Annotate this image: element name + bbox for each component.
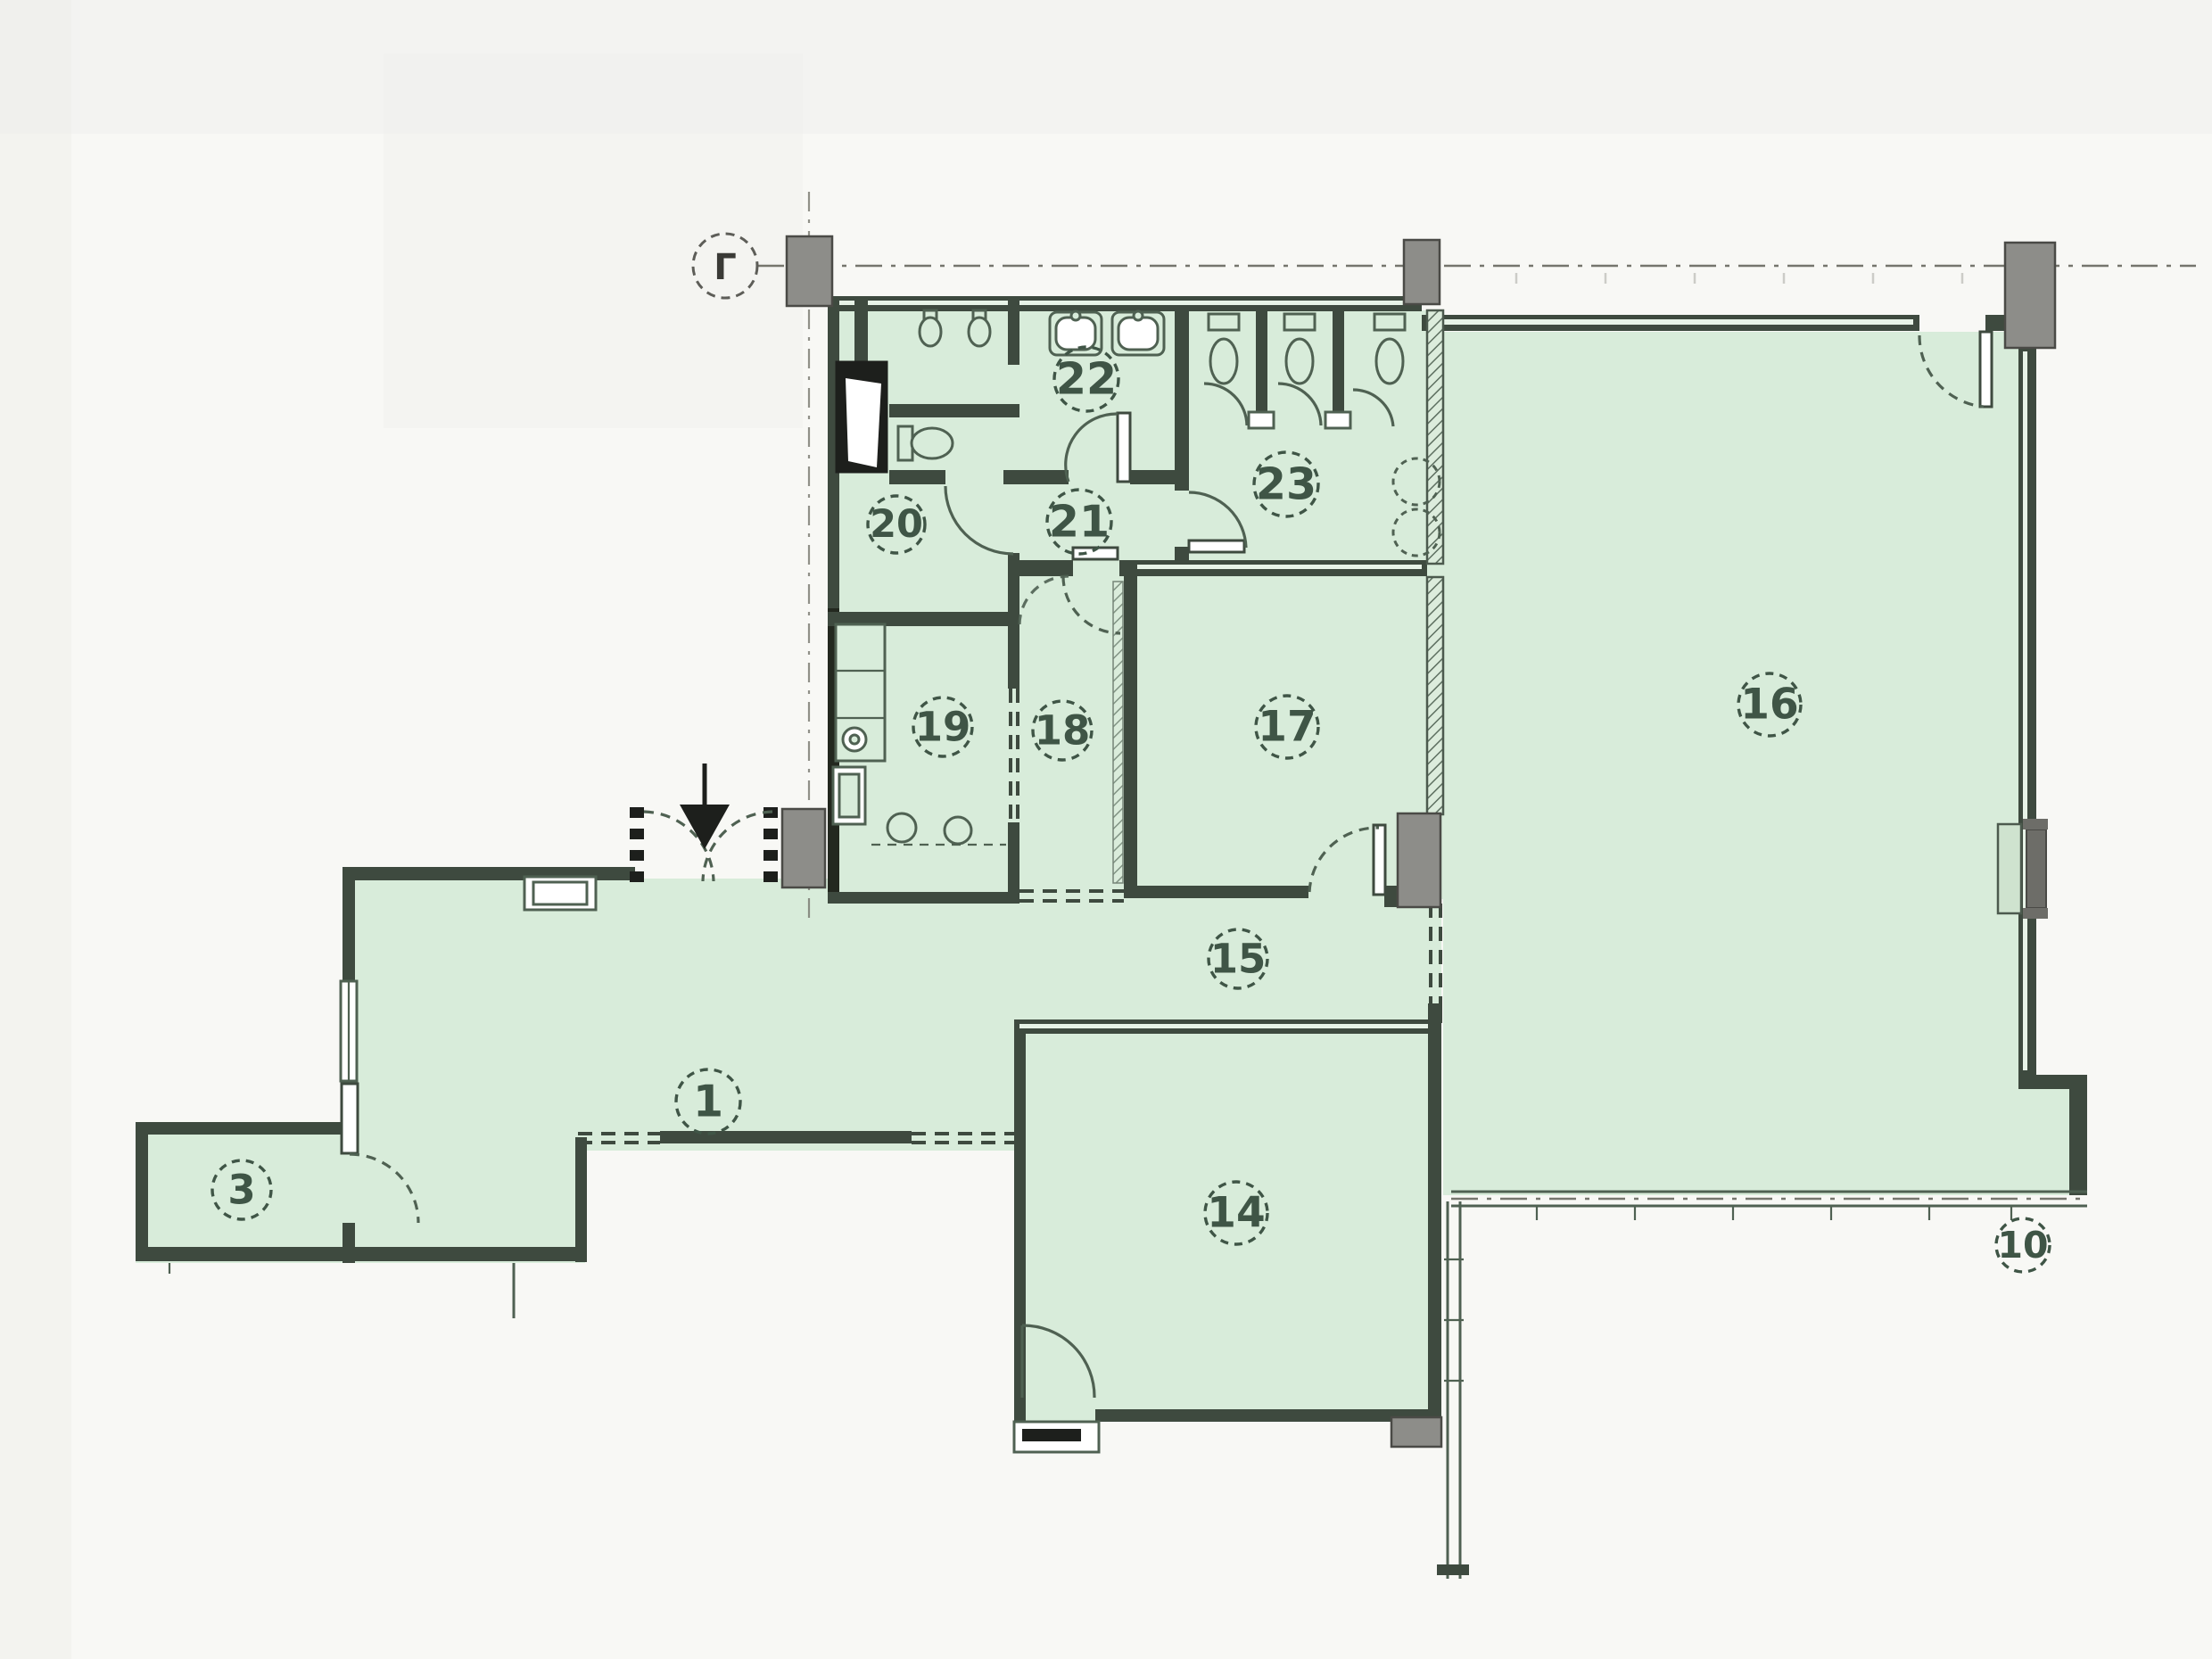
room-number-text: 18 xyxy=(1035,707,1091,755)
room-number-text: 17 xyxy=(1258,703,1316,752)
door-leaf xyxy=(1980,332,1992,407)
room-number-text: 16 xyxy=(1740,681,1798,730)
room-number-text: 3 xyxy=(227,1167,255,1214)
entrance-double-door xyxy=(630,763,778,882)
room-number-text: 1 xyxy=(693,1077,723,1127)
vent-shaft-icon xyxy=(836,361,887,473)
floor-room-16 xyxy=(1443,332,2071,1195)
floor-sanitary-block xyxy=(839,310,1443,899)
room-label-20: 20 xyxy=(868,496,925,553)
floor-plan-drawing: 131014151617181920212223Г xyxy=(0,0,2212,1659)
room-label-14: 14 xyxy=(1205,1182,1267,1244)
room-label-16: 16 xyxy=(1738,673,1801,736)
room-label-10: 10 xyxy=(1996,1218,2050,1272)
column-icon xyxy=(1398,813,1440,907)
room-label-23: 23 xyxy=(1254,452,1318,516)
room-label-22: 22 xyxy=(1054,347,1118,411)
column-icon xyxy=(1391,1417,1441,1447)
room-number-text: 19 xyxy=(915,704,971,751)
column-icon xyxy=(1404,240,1440,304)
room-number-text: 15 xyxy=(1210,936,1267,983)
door-leaf xyxy=(1118,413,1130,482)
door-leaf xyxy=(342,1084,358,1153)
room-label-18: 18 xyxy=(1033,701,1092,760)
room-label-17: 17 xyxy=(1256,696,1318,758)
toilet-icon xyxy=(898,426,953,460)
hatched-wall xyxy=(1113,582,1123,883)
room-label-21: 21 xyxy=(1047,490,1111,554)
column-icon xyxy=(2005,243,2055,348)
room-number-text: 10 xyxy=(1997,1224,2048,1267)
grid-axis-letter: Г xyxy=(714,247,737,288)
column-icon xyxy=(787,236,832,306)
entrance-arrow-icon xyxy=(680,805,730,849)
room-label-15: 15 xyxy=(1209,929,1267,988)
room-number-text: 20 xyxy=(870,502,923,547)
hatched-wall xyxy=(1427,310,1443,564)
room-number-text: 22 xyxy=(1056,354,1117,405)
room-number-text: 23 xyxy=(1256,459,1316,510)
room-number-text: 21 xyxy=(1049,497,1110,548)
entry-step xyxy=(1014,1422,1099,1452)
door-leaf xyxy=(1189,541,1244,552)
room-number-text: 14 xyxy=(1207,1189,1265,1238)
floor-plan-sheet: 131014151617181920212223Г xyxy=(0,0,2212,1659)
column-icon xyxy=(782,809,825,887)
door-leaf xyxy=(1374,825,1385,895)
hatched-wall xyxy=(1427,577,1443,814)
room-label-19: 19 xyxy=(913,697,972,756)
